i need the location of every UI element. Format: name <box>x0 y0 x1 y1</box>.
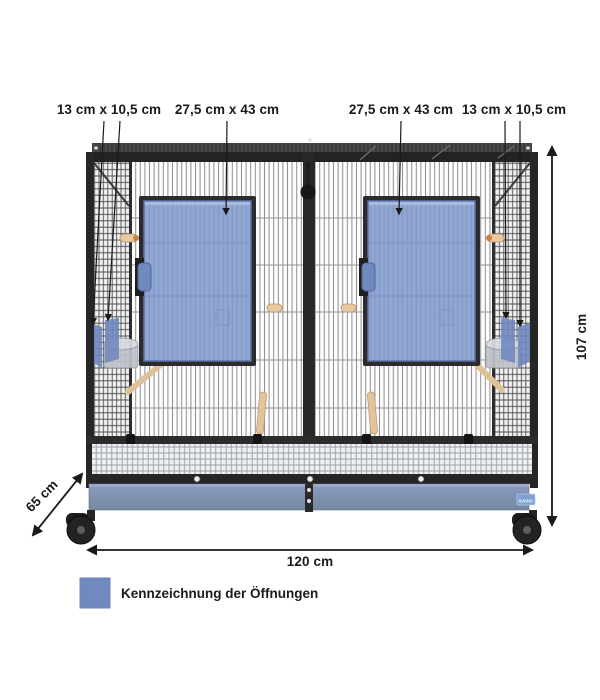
floor-grate <box>92 444 532 474</box>
right-tray-lip <box>312 484 529 487</box>
label-opening-small-right: 13 cm x 10,5 cm <box>462 102 566 117</box>
perch-dowel-tip <box>133 235 139 241</box>
perch-dowel-tip <box>486 235 492 241</box>
right-door-latch <box>362 263 375 291</box>
perch-dowel <box>341 304 356 312</box>
right-caster-hub <box>523 526 531 534</box>
brand-badge-text: SAVIC <box>519 498 534 503</box>
right-inner-post <box>492 162 495 438</box>
left-caster-hub <box>77 526 85 534</box>
left-door-latch <box>138 263 151 291</box>
label-opening-large-left: 27,5 cm x 43 cm <box>175 102 279 117</box>
legend-label: Kennzeichnung der Öffnungen <box>121 586 318 601</box>
casters <box>66 510 541 544</box>
left-side-panel-mesh <box>92 162 131 438</box>
label-height: 107 cm <box>574 314 589 360</box>
right-inner-small-opening <box>501 318 515 363</box>
base-trays: SAVIC <box>89 484 535 512</box>
brand-badge: SAVIC <box>517 494 535 505</box>
left-tray-lip <box>89 484 306 487</box>
top-screw <box>94 146 98 150</box>
top-center-screw <box>308 138 312 142</box>
right-side-panel-mesh <box>493 162 532 438</box>
label-depth: 65 cm <box>23 477 61 515</box>
left-door-panel-stripes <box>144 201 251 361</box>
left-inner-small-opening <box>105 318 119 363</box>
right-outer-small-opening <box>518 322 532 368</box>
product-dimension-diagram: SAVIC <box>0 0 600 700</box>
top-screw <box>526 146 530 150</box>
left-door-opening <box>135 196 256 366</box>
label-opening-large-right: 27,5 cm x 43 cm <box>349 102 453 117</box>
right-base-tray <box>312 484 529 510</box>
cage-illustration: SAVIC <box>66 138 541 544</box>
left-base-tray <box>89 484 306 510</box>
legend-swatch <box>80 578 110 608</box>
divider-post <box>303 152 315 484</box>
label-width: 120 cm <box>287 554 333 569</box>
tray-center-screw <box>307 499 311 503</box>
right-door-panel-stripes <box>368 201 475 361</box>
divider-knob <box>301 185 316 200</box>
tray-center-screw <box>307 488 311 492</box>
perch-dowel <box>267 304 282 312</box>
legend: Kennzeichnung der Öffnungen <box>80 578 318 608</box>
top-back-rail-hatch <box>92 143 532 153</box>
label-opening-small-left: 13 cm x 10,5 cm <box>57 102 161 117</box>
right-door-opening <box>359 196 480 366</box>
left-inner-post <box>129 162 132 438</box>
divider-rod <box>307 162 310 188</box>
